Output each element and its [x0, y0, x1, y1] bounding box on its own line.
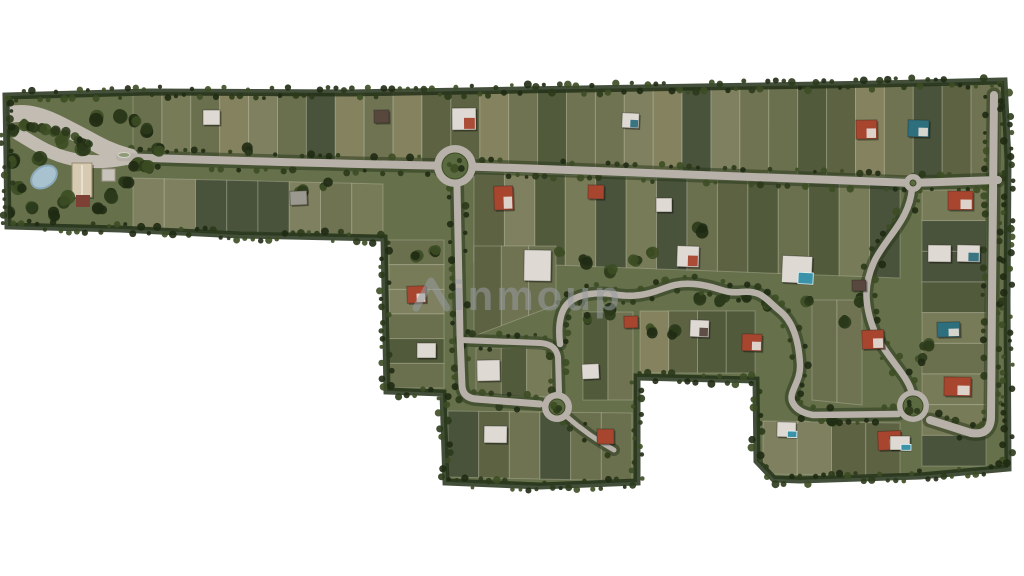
- tree: [425, 171, 430, 176]
- tree: [479, 346, 483, 350]
- house-roof-accent: [948, 329, 959, 337]
- tree: [353, 238, 360, 245]
- tree: [107, 224, 111, 228]
- tree: [548, 89, 556, 97]
- tree: [880, 231, 886, 237]
- tree: [142, 87, 146, 91]
- tree: [1, 172, 8, 179]
- tree: [560, 159, 566, 165]
- tree: [237, 92, 244, 99]
- tree: [754, 283, 761, 290]
- house-roof-accent: [866, 128, 876, 138]
- tree: [557, 81, 563, 87]
- tree: [497, 157, 502, 162]
- tree: [254, 167, 260, 173]
- tree: [507, 392, 512, 397]
- tree: [450, 321, 455, 326]
- lot: [798, 86, 827, 176]
- tree: [749, 381, 754, 386]
- tree: [110, 86, 115, 91]
- tree: [18, 220, 25, 227]
- tree: [980, 264, 987, 271]
- tree: [983, 95, 987, 99]
- house: [944, 377, 973, 398]
- tree: [838, 86, 842, 90]
- tree: [840, 169, 844, 173]
- tree: [727, 283, 733, 289]
- tree: [757, 181, 764, 188]
- tree: [174, 149, 178, 153]
- tree: [982, 210, 989, 217]
- tree: [725, 380, 730, 385]
- tree: [1009, 147, 1013, 151]
- tree: [934, 78, 938, 82]
- tree: [916, 199, 920, 203]
- tree: [9, 149, 14, 154]
- tree: [565, 330, 572, 337]
- house: [677, 246, 701, 269]
- tree: [860, 77, 868, 85]
- house: [597, 429, 616, 446]
- tree: [958, 83, 963, 88]
- tree: [470, 84, 474, 88]
- tree: [982, 418, 986, 422]
- tree: [273, 152, 277, 156]
- tree: [758, 413, 763, 418]
- tree: [438, 473, 445, 480]
- tree: [957, 467, 961, 471]
- tree: [940, 473, 947, 480]
- tree: [847, 185, 854, 192]
- house-roof: [290, 191, 308, 206]
- tree: [872, 293, 877, 298]
- tree: [10, 109, 14, 113]
- tree: [686, 163, 692, 169]
- tree: [357, 94, 363, 100]
- tree: [757, 451, 765, 459]
- tree: [380, 320, 386, 326]
- tree: [253, 95, 259, 101]
- tree: [811, 404, 816, 409]
- tree: [455, 396, 462, 403]
- tree: [804, 362, 812, 370]
- tree: [894, 76, 898, 80]
- lot: [740, 86, 769, 174]
- tree: [935, 410, 943, 418]
- tree: [380, 383, 387, 390]
- tree: [51, 126, 61, 136]
- tree: [245, 150, 252, 157]
- house: [452, 108, 478, 132]
- tree: [637, 88, 644, 95]
- house-roof: [624, 316, 638, 328]
- tree: [947, 172, 952, 177]
- tree: [1010, 434, 1015, 439]
- tree: [154, 146, 165, 157]
- tree: [493, 85, 498, 90]
- tree: [349, 85, 355, 91]
- tree: [217, 166, 224, 173]
- tree: [1010, 186, 1016, 192]
- tree: [623, 162, 629, 168]
- tree: [569, 161, 574, 166]
- pool: [901, 444, 911, 450]
- house-roof-accent: [464, 118, 475, 129]
- tree: [1007, 266, 1013, 272]
- house-roof: [928, 245, 951, 262]
- tree: [1009, 385, 1015, 391]
- tree: [996, 311, 1000, 315]
- tree: [748, 372, 755, 379]
- tree: [525, 487, 531, 493]
- tree: [889, 369, 896, 376]
- tree: [1003, 459, 1011, 467]
- tree: [647, 328, 658, 339]
- tree: [799, 400, 804, 405]
- tree: [420, 386, 425, 391]
- tree: [141, 123, 153, 135]
- tree: [379, 257, 384, 262]
- house-roof: [597, 429, 614, 444]
- tree: [973, 186, 980, 193]
- tree: [886, 224, 891, 229]
- tree: [190, 87, 194, 91]
- tree: [821, 472, 826, 477]
- lot: [501, 348, 526, 396]
- tree: [623, 485, 627, 489]
- tree: [861, 263, 867, 269]
- tree: [896, 353, 903, 360]
- tree: [438, 92, 442, 96]
- tree: [684, 378, 690, 384]
- tree: [995, 460, 1002, 467]
- tree: [614, 476, 619, 481]
- tree: [35, 222, 40, 227]
- tree: [919, 171, 926, 178]
- tree: [786, 308, 791, 313]
- tree: [1007, 113, 1014, 120]
- tree: [488, 390, 494, 396]
- house: [742, 334, 764, 353]
- tree: [562, 359, 569, 366]
- tree: [421, 86, 428, 93]
- tree: [1005, 89, 1013, 97]
- tree: [264, 167, 268, 171]
- pool: [798, 272, 813, 284]
- tree: [637, 371, 641, 375]
- tree: [908, 74, 915, 81]
- house-roof-accent: [630, 120, 638, 128]
- tree: [17, 184, 26, 193]
- tree: [162, 231, 168, 237]
- tree: [559, 486, 563, 490]
- house: [484, 426, 509, 445]
- tree: [565, 484, 572, 491]
- tree: [573, 486, 580, 493]
- tree: [14, 99, 18, 103]
- tree: [438, 434, 444, 440]
- tree: [431, 245, 441, 255]
- tree: [229, 94, 235, 100]
- tree: [242, 236, 247, 241]
- tree: [398, 86, 403, 91]
- tree: [91, 221, 96, 226]
- tree: [378, 265, 382, 269]
- tree: [734, 87, 738, 91]
- tree: [1000, 410, 1006, 416]
- tree: [1000, 289, 1008, 297]
- tree: [380, 85, 387, 92]
- tree: [300, 154, 305, 159]
- tree: [1007, 122, 1013, 128]
- tree: [853, 78, 858, 83]
- tree: [548, 378, 553, 383]
- tree: [169, 231, 177, 239]
- tree: [89, 113, 103, 127]
- tree: [699, 290, 704, 295]
- tree: [183, 148, 187, 152]
- tree: [542, 83, 546, 87]
- tree: [997, 229, 1004, 236]
- tree: [750, 396, 756, 402]
- tree: [258, 238, 263, 243]
- tree: [317, 86, 323, 92]
- tree: [114, 221, 121, 228]
- tree: [447, 441, 453, 447]
- tree: [662, 81, 666, 85]
- tree: [22, 89, 26, 93]
- lot: [595, 87, 624, 170]
- tree: [86, 141, 93, 148]
- tree: [6, 115, 14, 123]
- lot: [196, 180, 227, 232]
- tree: [307, 230, 311, 234]
- house: [890, 436, 912, 452]
- tree: [638, 388, 644, 394]
- tree: [995, 391, 1001, 397]
- tree: [758, 421, 763, 426]
- tree: [113, 109, 127, 123]
- tree: [10, 220, 16, 226]
- tree: [179, 227, 184, 232]
- tree: [981, 318, 989, 326]
- tree: [386, 312, 392, 318]
- tree: [389, 368, 395, 374]
- house: [656, 198, 674, 214]
- tree: [165, 150, 169, 154]
- tree: [9, 155, 16, 162]
- tree: [155, 164, 161, 170]
- tree: [748, 436, 755, 443]
- tree: [630, 299, 636, 305]
- tree: [647, 249, 655, 257]
- tree: [650, 179, 655, 184]
- tree: [949, 82, 955, 88]
- lot: [837, 300, 862, 405]
- tree: [341, 87, 347, 93]
- tree: [429, 85, 435, 91]
- house: [203, 110, 222, 127]
- tree: [129, 230, 136, 237]
- lot: [567, 88, 596, 170]
- tree: [411, 251, 420, 260]
- tree: [485, 478, 492, 485]
- tree: [250, 237, 255, 242]
- lot: [682, 87, 711, 173]
- tree: [153, 223, 161, 231]
- tree: [28, 87, 36, 95]
- tree: [277, 93, 282, 98]
- house: [957, 245, 982, 264]
- tree: [925, 476, 930, 481]
- tree: [950, 475, 954, 479]
- tree: [386, 352, 392, 358]
- tree: [98, 230, 103, 235]
- tree: [826, 404, 834, 412]
- house-roof-accent: [873, 338, 883, 348]
- lot: [653, 87, 682, 172]
- tree: [798, 474, 802, 478]
- tree: [48, 207, 59, 218]
- tree: [804, 296, 814, 306]
- tree: [477, 91, 482, 96]
- tree: [546, 352, 554, 360]
- tree: [326, 153, 333, 160]
- lot: [509, 412, 540, 479]
- tree: [352, 169, 359, 176]
- tree: [449, 338, 455, 344]
- tree: [385, 247, 393, 255]
- tree: [404, 392, 410, 398]
- tree: [982, 112, 989, 119]
- tree: [563, 339, 569, 345]
- tree: [293, 92, 300, 99]
- lot: [748, 181, 778, 273]
- tree: [998, 83, 1002, 87]
- tree: [721, 279, 726, 284]
- tree: [8, 123, 16, 131]
- tree: [772, 480, 780, 488]
- tree: [736, 298, 741, 303]
- tree: [510, 487, 515, 492]
- tree: [723, 166, 728, 171]
- tree: [343, 170, 350, 177]
- tree: [612, 80, 619, 87]
- tree: [763, 464, 768, 469]
- tree: [463, 249, 467, 253]
- tree: [884, 187, 888, 191]
- tree: [86, 88, 90, 92]
- tree: [917, 468, 922, 473]
- tree: [1001, 170, 1006, 175]
- tree: [331, 239, 335, 243]
- tree: [197, 94, 203, 100]
- tree: [461, 94, 467, 100]
- tree: [369, 239, 376, 246]
- tree: [550, 485, 556, 491]
- tree: [501, 90, 507, 96]
- tree: [1000, 137, 1008, 145]
- tree: [980, 192, 987, 199]
- tree: [941, 76, 947, 82]
- tree: [444, 92, 452, 100]
- tree: [629, 468, 635, 474]
- tree: [781, 79, 786, 84]
- tree: [784, 183, 790, 189]
- lot: [769, 86, 798, 175]
- tree: [186, 232, 192, 238]
- junction-island-east: [904, 174, 922, 192]
- tree: [909, 471, 914, 476]
- tree: [165, 94, 172, 101]
- tree: [462, 202, 470, 210]
- tree: [487, 347, 492, 352]
- tree: [802, 183, 809, 190]
- tree: [447, 449, 454, 456]
- tree: [653, 279, 659, 285]
- tree: [309, 94, 314, 99]
- tree: [567, 425, 573, 431]
- lot: [258, 181, 289, 233]
- tree: [336, 153, 340, 157]
- tree: [614, 161, 619, 166]
- tree: [1000, 258, 1006, 264]
- tree: [632, 162, 637, 167]
- tree: [463, 231, 467, 235]
- tree: [677, 379, 682, 384]
- tree: [732, 381, 740, 389]
- tree: [966, 85, 971, 90]
- tree: [506, 173, 512, 179]
- lot: [583, 312, 608, 400]
- tree: [448, 240, 452, 244]
- house: [777, 422, 798, 439]
- tree: [581, 91, 587, 97]
- tree: [77, 87, 83, 93]
- tree: [829, 79, 834, 84]
- tree: [34, 152, 44, 162]
- tree: [750, 404, 758, 412]
- tree: [999, 378, 1005, 384]
- tree: [380, 345, 384, 349]
- tree: [749, 182, 754, 187]
- tree: [147, 148, 151, 152]
- house: [856, 120, 879, 141]
- house-roof-accent: [503, 197, 512, 209]
- tree: [485, 93, 491, 99]
- pool: [787, 431, 797, 438]
- tree: [890, 403, 897, 410]
- tree: [444, 417, 452, 425]
- tree: [884, 76, 891, 83]
- tree: [996, 238, 1003, 245]
- tree: [873, 309, 879, 315]
- house: [290, 191, 309, 207]
- tree: [469, 330, 476, 337]
- tree: [582, 479, 587, 484]
- tree: [881, 404, 887, 410]
- tree: [1000, 307, 1004, 311]
- tree: [631, 404, 635, 408]
- tree: [923, 340, 934, 351]
- tree: [1001, 395, 1005, 399]
- tree: [378, 328, 383, 333]
- tree: [1, 221, 5, 225]
- tree: [377, 231, 385, 239]
- tree: [562, 368, 569, 375]
- tree: [447, 477, 451, 481]
- tree: [686, 90, 690, 94]
